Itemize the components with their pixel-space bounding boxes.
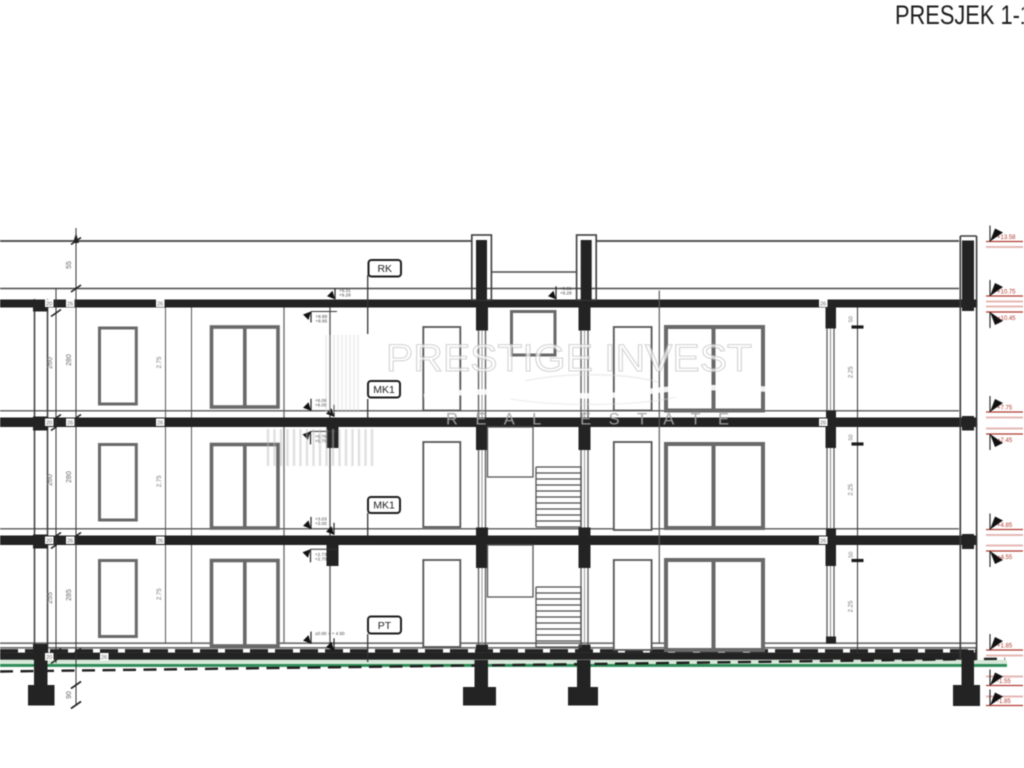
svg-text:+2.70: +2.70 [315,556,327,561]
svg-text:2.75: 2.75 [157,588,163,600]
svg-text:PRESJEK 1-1: PRESJEK 1-1 [895,0,1024,30]
svg-text:2.25: 2.25 [849,483,855,495]
svg-text:MK1: MK1 [373,500,395,512]
svg-text:50: 50 [849,434,855,440]
svg-text:26: 26 [67,302,73,308]
svg-text:+7.45: +7.45 [997,438,1013,444]
svg-text:280: 280 [66,471,73,483]
svg-text:+3.00: +3.00 [315,521,327,526]
svg-text:260: 260 [47,474,54,486]
svg-text:26: 26 [67,539,73,545]
svg-text:26: 26 [820,421,826,427]
svg-text:26: 26 [157,302,163,308]
svg-text:+10.45: +10.45 [997,316,1016,322]
svg-text:2.25: 2.25 [849,366,855,378]
svg-text:2.25: 2.25 [849,600,855,612]
svg-text:+7.75: +7.75 [997,406,1013,412]
svg-text:50: 50 [849,552,855,558]
svg-text:55: 55 [66,261,73,269]
svg-text:2.75: 2.75 [157,475,163,487]
svg-text:+10.75: +10.75 [997,290,1016,296]
svg-text:26: 26 [157,421,163,427]
svg-text:50: 50 [849,316,855,322]
svg-text:+4.55: +4.55 [997,555,1013,561]
svg-text:PRESTIGE INVEST: PRESTIGE INVEST [386,338,752,380]
svg-text:MK1: MK1 [373,384,395,396]
svg-text:+9.28: +9.28 [339,292,351,297]
svg-text:+13.58: +13.58 [997,235,1016,241]
svg-text:280: 280 [66,354,73,366]
svg-text:20: 20 [46,539,52,545]
svg-text:90: 90 [66,691,73,699]
svg-text:+8.85: +8.85 [316,319,328,324]
svg-text:260: 260 [47,357,54,369]
svg-text:20: 20 [46,421,52,427]
svg-text:+9.28: +9.28 [560,290,572,295]
svg-text:20: 20 [46,302,52,308]
svg-text:20: 20 [46,655,52,661]
svg-text:285: 285 [66,589,73,601]
svg-text:±0.00 = + 4.50: ±0.00 = + 4.50 [315,631,345,636]
svg-text:-1.85: -1.85 [997,699,1011,705]
svg-text:2.75: 2.75 [157,356,163,368]
svg-text:-1.55: -1.55 [997,679,1011,685]
svg-text:26: 26 [820,539,826,545]
svg-text:255: 255 [47,592,54,604]
svg-text:+1.85: +1.85 [997,644,1013,650]
svg-text:26: 26 [101,655,107,661]
svg-text:+4.85: +4.85 [997,523,1013,529]
svg-text:26: 26 [820,302,826,308]
svg-text:26: 26 [67,421,73,427]
svg-text:PT: PT [378,620,392,632]
svg-text:26: 26 [157,539,163,545]
svg-text:RK: RK [377,263,392,275]
